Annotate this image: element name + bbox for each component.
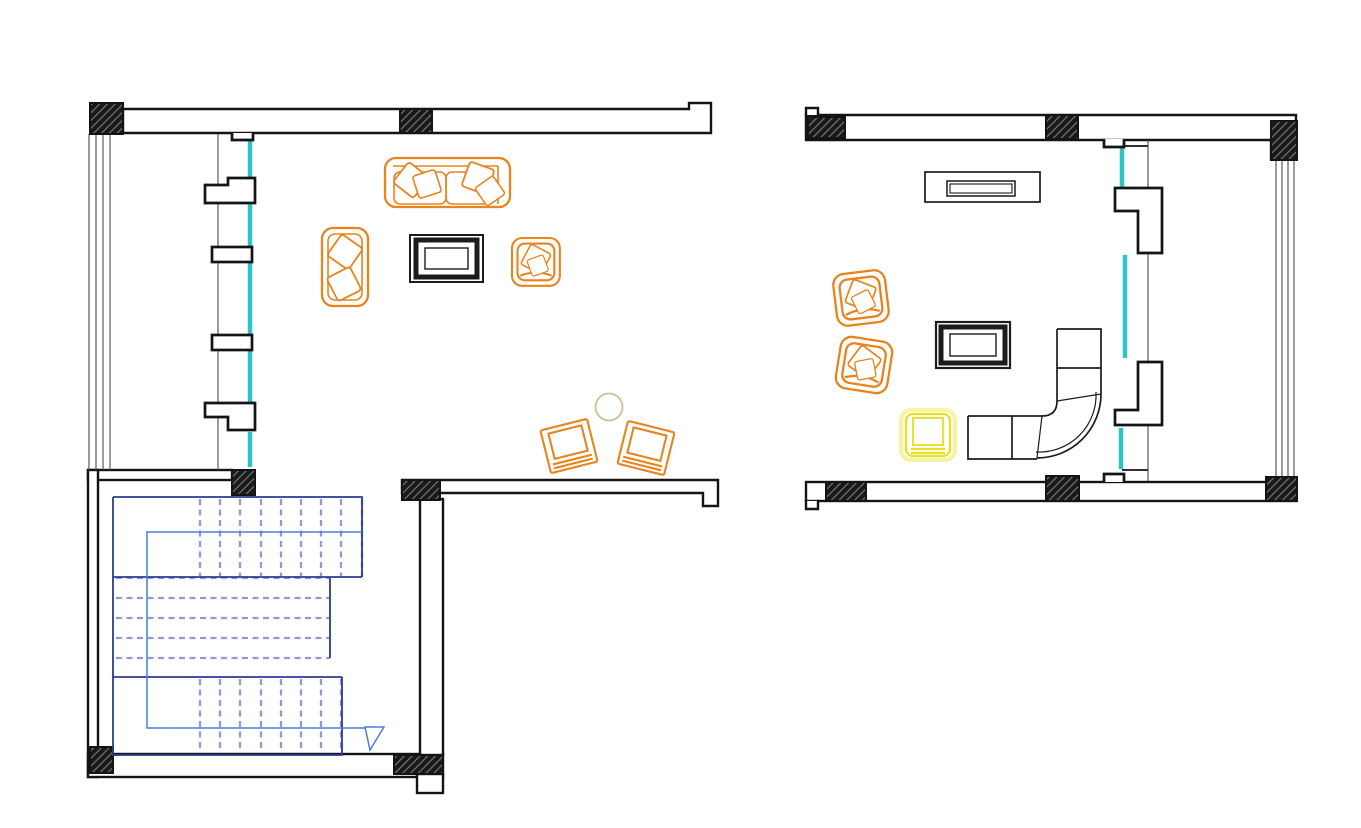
column-icon — [1046, 115, 1078, 139]
stair-hall-left-wall — [88, 470, 98, 777]
column-icon — [90, 103, 123, 134]
column-icon — [1046, 476, 1079, 501]
stair-hall-bottom-wall — [88, 754, 443, 777]
column-icon — [1271, 121, 1297, 160]
column-icon — [808, 117, 845, 138]
wall-end-tab — [806, 108, 818, 115]
column-icon — [1266, 477, 1297, 501]
floor-plan-canvas — [0, 0, 1361, 828]
wall-end-tab — [806, 501, 818, 509]
floor-plan-drawing — [0, 0, 1361, 828]
column-icon — [232, 470, 255, 495]
column-icon — [826, 482, 866, 501]
column-icon — [400, 109, 432, 133]
column-icon — [90, 747, 113, 773]
pilaster — [417, 774, 443, 793]
stair-hall-top-wall — [88, 470, 232, 480]
column-icon — [394, 755, 443, 774]
column-icon — [402, 480, 440, 500]
stair-hall-right-wall — [420, 499, 443, 755]
